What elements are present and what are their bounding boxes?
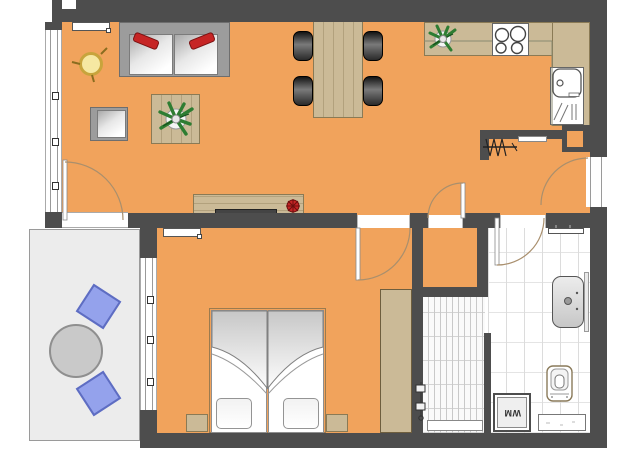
washing-machine-drum: WM xyxy=(497,397,527,428)
shower-floor xyxy=(422,297,485,433)
window-bedroom-terrace xyxy=(140,258,157,410)
storage-door-opening xyxy=(428,215,463,228)
dining-chair-3 xyxy=(363,31,383,61)
night-stand-left xyxy=(186,414,208,432)
duct-shaft-inner xyxy=(567,131,583,147)
bed-pillow-right xyxy=(283,398,319,429)
wall-mid-a xyxy=(128,213,357,228)
armchair-seat xyxy=(97,110,126,138)
radiator-bedroom xyxy=(163,228,201,237)
bedroom-door-opening xyxy=(357,215,410,228)
wall-mid-b xyxy=(410,213,428,228)
bathroom-door-opening xyxy=(500,215,546,228)
dining-chair-4 xyxy=(363,76,383,106)
hall-shelf xyxy=(518,136,547,142)
entrance-door-opening xyxy=(586,157,607,207)
side-table xyxy=(79,52,103,76)
wall-bedwindow-lower xyxy=(140,410,157,433)
terrace-door-opening xyxy=(62,212,128,228)
washing-machine-label: WM xyxy=(504,408,521,418)
wall-left-upper xyxy=(45,22,62,30)
basin-back-rail xyxy=(584,272,589,332)
wall-right-upper xyxy=(590,0,607,157)
wall-top xyxy=(52,0,607,22)
bath-shelf xyxy=(548,228,584,234)
wall-bedroom-shower xyxy=(412,228,423,433)
bed-pillow-left xyxy=(216,398,252,429)
wall-mid-c xyxy=(463,213,500,228)
radiator-bedroom-handle xyxy=(197,234,202,239)
shower-step xyxy=(427,420,483,431)
bath-counter xyxy=(538,414,586,431)
kitchen-sink-unit xyxy=(550,67,584,125)
wall-left-lower xyxy=(45,212,63,228)
night-stand-right xyxy=(326,414,348,432)
dining-table xyxy=(313,20,363,118)
wall-storage-right xyxy=(477,228,488,287)
dining-chair-1 xyxy=(293,31,313,61)
wardrobe xyxy=(380,289,412,433)
wall-hall-jut xyxy=(480,130,489,160)
wall-right-lower xyxy=(590,207,607,448)
radiator-living-handle xyxy=(106,28,111,33)
coffee-table xyxy=(151,94,200,144)
washing-machine: WM xyxy=(493,393,531,432)
stove xyxy=(492,23,529,56)
terrace-table xyxy=(49,324,103,378)
wall-storage-bottom xyxy=(412,287,488,297)
wall-bedwindow-upper xyxy=(140,228,157,258)
window-living-west xyxy=(45,30,62,212)
wall-shower-half xyxy=(484,333,491,433)
radiator-living xyxy=(72,22,110,31)
washbasin xyxy=(552,276,584,328)
dining-chair-2 xyxy=(293,76,313,106)
floor-plan: WM xyxy=(0,0,640,452)
wall-top-notch xyxy=(62,0,76,9)
wall-bottom xyxy=(140,433,607,448)
